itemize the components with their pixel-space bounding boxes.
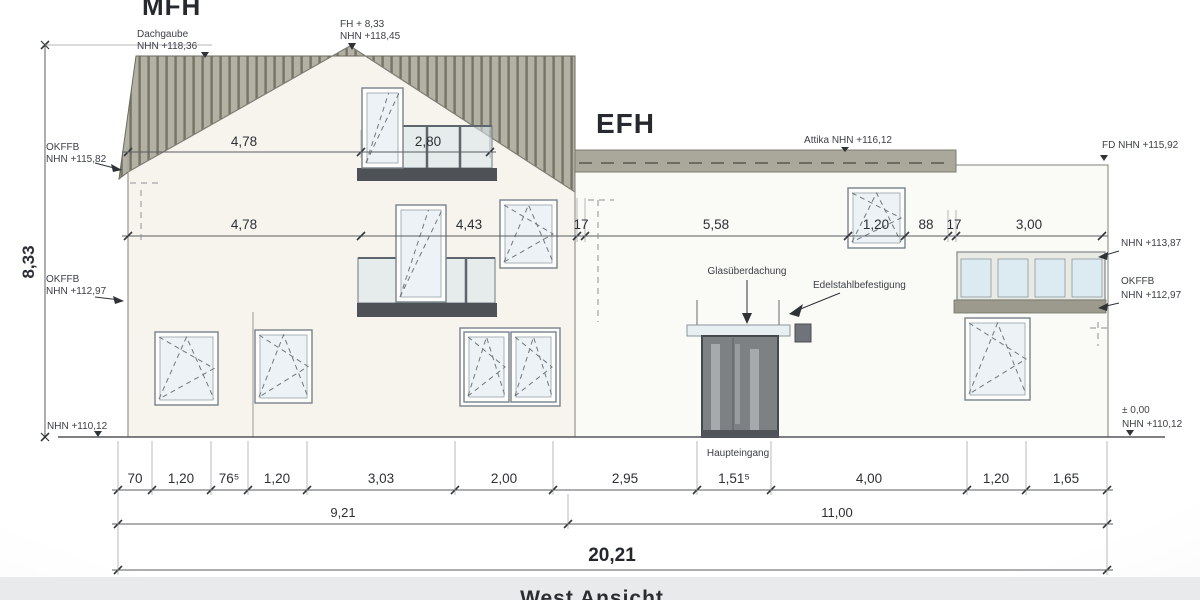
window-glass [160, 337, 213, 400]
dim-roof-1: 4,78 [231, 134, 257, 149]
dim-bot-4: 1,20 [264, 471, 290, 486]
dim-height: 8,33 [19, 245, 38, 278]
dim-bot-6: 2,00 [491, 471, 517, 486]
level-arrow-icon [94, 431, 102, 437]
dim-bot-7: 2,95 [612, 471, 638, 486]
dim-mid-5: 1,20 [863, 217, 889, 232]
dim-subtotal-2: 11,00 [821, 505, 853, 520]
dim-subtotal-1: 9,21 [330, 505, 355, 520]
window-glass [505, 205, 552, 263]
attika-band [575, 150, 956, 172]
window [511, 332, 556, 402]
dachgaube-label-line2: NHN +118,36 [137, 41, 198, 52]
fd-label: FD NHN +115,92 [1102, 140, 1179, 151]
strip-pane [961, 259, 991, 297]
strip-pane [1035, 259, 1065, 297]
strip-pane [998, 259, 1028, 297]
dim-mid-3: 17 [573, 217, 588, 232]
dim-bot-8: 1,51⁵ [718, 471, 750, 486]
entrance-label: Haupteingang [707, 448, 769, 459]
dim-mid-4: 5,58 [703, 217, 729, 232]
okffb-lower-left-line1: OKFFB [46, 274, 80, 285]
dim-bot-5: 3,03 [368, 471, 394, 486]
ridge-label-line2: NHN +118,45 [340, 31, 401, 42]
dim-total: 20,21 [588, 545, 636, 566]
window-glass [970, 323, 1025, 395]
window [464, 332, 509, 402]
efh-title: EFH [596, 108, 655, 139]
zero-level-line2: NHN +110,12 [1122, 419, 1183, 430]
okffb-lower-left-line2: NHN +112,97 [46, 286, 107, 297]
window [362, 88, 403, 168]
strip-pane [1072, 259, 1102, 297]
okffb-upper-left-line1: OKFFB [46, 142, 80, 153]
dormer-balcony-base [357, 168, 497, 181]
ground-left-label: NHN +110,12 [47, 421, 108, 432]
level-arrow-icon [1126, 430, 1134, 436]
view-title: West Ansicht [520, 587, 664, 600]
fixing-label: Edelstahlbefestigung [813, 280, 906, 291]
window-glass [516, 337, 551, 397]
mfh-title: MFH [142, 0, 201, 21]
window-glass [469, 337, 504, 397]
okffb-right-line2: NHN +112,97 [1121, 290, 1182, 301]
window [255, 330, 312, 403]
steel-fixing-block [795, 324, 811, 342]
dim-bot-1: 70 [127, 471, 142, 486]
dim-bot-9: 4,00 [856, 471, 882, 486]
dim-bot-11: 1,65 [1053, 471, 1079, 486]
dim-mid-8: 3,00 [1016, 217, 1042, 232]
dim-bot-2: 1,20 [168, 471, 194, 486]
dachgaube-label-line1: Dachgaube [137, 29, 189, 40]
zero-level-line1: ± 0,00 [1122, 405, 1150, 416]
dim-mid-6: 88 [918, 217, 933, 232]
leader-arrow-icon [113, 296, 124, 304]
window [965, 318, 1030, 400]
dim-bot-10: 1,20 [983, 471, 1009, 486]
ridge-label-line1: FH + 8,33 [340, 19, 385, 30]
glass-canopy [687, 325, 790, 336]
dim-mid-2: 4,43 [456, 217, 482, 232]
window-glass [260, 335, 307, 398]
window [500, 200, 557, 268]
strip-window-sill [954, 300, 1106, 313]
nhn-113-label: NHN +113,87 [1121, 238, 1182, 249]
dim-roof-2: 2,80 [415, 134, 441, 149]
dim-bot-3: 76⁵ [219, 471, 240, 486]
dim-mid-7: 17 [946, 217, 961, 232]
strip-windows [954, 252, 1106, 313]
window [155, 332, 218, 405]
upper-balcony-base [357, 303, 497, 317]
level-arrow-icon [1100, 155, 1108, 161]
window [396, 205, 446, 302]
west-elevation-drawing: 4,78 2,80 4,78 4,43 17 5,58 1,20 88 17 3… [0, 0, 1200, 600]
dim-mid-1: 4,78 [231, 217, 257, 232]
attika-label: Attika NHN +116,12 [804, 135, 892, 146]
canopy-label: Glasüberdachung [708, 266, 787, 277]
okffb-right-line1: OKFFB [1121, 276, 1155, 287]
entrance-door [702, 336, 778, 437]
